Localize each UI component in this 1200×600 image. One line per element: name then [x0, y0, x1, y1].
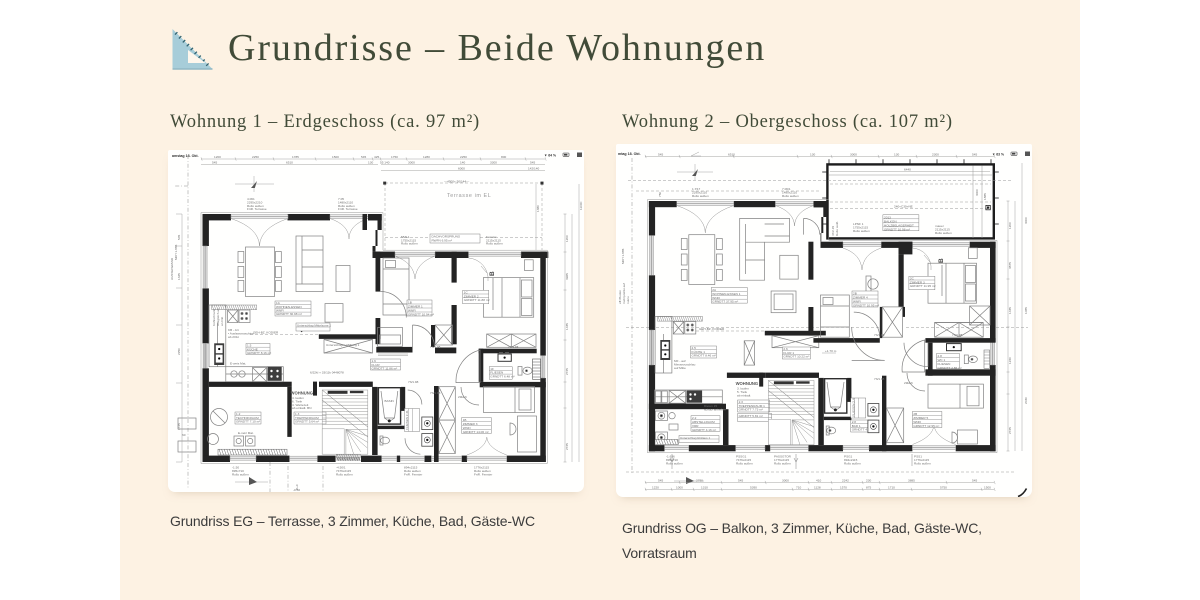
svg-text:3000: 3000 [1024, 217, 1028, 224]
svg-text:an Okt: an Okt [220, 317, 224, 326]
svg-text:GRNDTT 14.06 m²: GRNDTT 14.06 m² [463, 430, 489, 434]
svg-text:ab einladt: ab einladt [737, 393, 751, 397]
svg-text:1310: 1310 [701, 486, 708, 490]
svg-text:—4500+ 50/144—: —4500+ 50/144— [444, 179, 470, 183]
svg-text:1500: 1500 [332, 155, 339, 159]
svg-text:875: 875 [866, 486, 871, 490]
svg-text:1220: 1220 [652, 486, 659, 490]
svg-text:nutzu: nutzu [626, 296, 630, 304]
svg-text:GRNDTT 11.88 m²: GRNDTT 11.88 m² [464, 298, 490, 302]
svg-text:FrtR. Fenster: FrtR. Fenster [404, 472, 422, 476]
svg-text:FrtR. Fenster: FrtR. Fenster [474, 472, 492, 476]
svg-text:1200: 1200 [1008, 222, 1012, 229]
svg-text:545: 545 [177, 235, 181, 240]
svg-text:MFH 1.885: MFH 1.885 [621, 248, 625, 264]
svg-text:3000: 3000 [782, 479, 789, 483]
svg-text:240+C30+NE: 240+C30+NE [894, 204, 913, 208]
svg-text:GEH-BZ. KODIER: GEH-BZ. KODIER [253, 331, 279, 335]
svg-text:6000: 6000 [458, 167, 465, 171]
svg-text:1435: 1435 [1008, 307, 1012, 314]
svg-text:B: B [938, 258, 945, 263]
svg-text:GRNDTT 4.16 m²: GRNDTT 4.16 m² [692, 428, 716, 432]
svg-text:3000: 3000 [408, 161, 415, 165]
svg-text:BASIN: BASIN [385, 399, 394, 403]
svg-text:1345: 1345 [177, 273, 181, 280]
svg-text:6/22kl + 33/11k 0448078: 6/22kl + 33/11k 0448078 [310, 371, 344, 375]
svg-text:GRNDTT 37.95 m²: GRNDTT 37.95 m² [712, 300, 738, 304]
svg-text:mtag 18. Okt.: mtag 18. Okt. [618, 152, 641, 156]
svg-text:73/1.98: 73/1.98 [508, 345, 519, 349]
svg-text:11000: 11000 [579, 201, 583, 210]
svg-text:2790: 2790 [696, 479, 703, 483]
svg-text:Rollo außen: Rollo außen [666, 461, 683, 465]
svg-text:ab einladt. BN: ab einladt. BN [292, 406, 311, 410]
svg-text:130: 130 [368, 161, 373, 165]
svg-text:73/1.98: 73/1.98 [952, 333, 963, 337]
svg-text:1200: 1200 [214, 155, 221, 159]
svg-text:Rollo weiß: Rollo weiß [835, 221, 839, 236]
svg-text:130: 130 [894, 152, 899, 156]
svg-text:1785: 1785 [292, 155, 299, 159]
svg-text:GRNDTT 6.48 m²: GRNDTT 6.48 m² [490, 374, 514, 378]
svg-text:73/1.98: 73/1.98 [430, 345, 441, 349]
svg-text:amstag 18. Okt.: amstag 18. Okt. [172, 154, 199, 158]
svg-text:73/1.98: 73/1.98 [408, 380, 419, 384]
svg-text:3000: 3000 [975, 189, 979, 196]
svg-text:73/1.98: 73/1.98 [874, 377, 885, 381]
svg-text:GRNDTT 10.95 m²: GRNDTT 10.95 m² [853, 304, 879, 308]
svg-text:3875: 3875 [1008, 262, 1012, 269]
svg-text:800: 800 [501, 155, 506, 159]
svg-text:Rollo außen: Rollo außen [486, 242, 503, 246]
svg-text:GRNDTT 11.95 m²: GRNDTT 11.95 m² [910, 284, 936, 288]
svg-text:Rollo außen: Rollo außen [692, 194, 709, 198]
svg-text:Unterschlag Rollaus 1: Unterschlag Rollaus 1 [680, 436, 711, 440]
svg-text:MFH 1.885: MFH 1.885 [174, 244, 178, 260]
svg-text:2725: 2725 [1008, 427, 1012, 434]
svg-text:FLIESEN 2.41: FLIESEN 2.41 [405, 410, 409, 430]
svg-text:1380: 1380 [536, 205, 540, 212]
svg-text:60: 60 [182, 433, 186, 437]
svg-text:1280: 1280 [423, 155, 430, 159]
svg-text:1500: 1500 [984, 486, 991, 490]
svg-text:5390: 5390 [750, 486, 757, 490]
svg-text:1200: 1200 [565, 235, 569, 242]
svg-text:545: 545 [972, 152, 977, 156]
svg-text:Rollo außen: Rollo außen [935, 231, 952, 235]
svg-text:GRNDTT 12.95 m²: GRNDTT 12.95 m² [913, 424, 939, 428]
svg-text:Rollo außen: Rollo außen [853, 229, 870, 233]
svg-text:GEH-BZ. KODIER: GEH-BZ. KODIER [699, 327, 725, 331]
svg-text:55 140: 55 140 [380, 161, 390, 165]
svg-text:1435: 1435 [565, 323, 569, 330]
svg-text:2725: 2725 [565, 368, 569, 375]
svg-text:WOHNUNG: WOHNUNG [736, 381, 759, 386]
svg-text:Untersichtiges Mißung 1: Untersichtiges Mißung 1 [326, 343, 360, 347]
svg-text:3885: 3885 [908, 479, 915, 483]
svg-text:2242: 2242 [842, 479, 849, 483]
svg-text:2250: 2250 [460, 155, 467, 159]
svg-text:FLIESEN 2.4: FLIESEN 2.4 [852, 398, 856, 416]
svg-text:GRNDTT 5.64 m²: GRNDTT 5.64 m² [295, 420, 319, 424]
svg-text:1750: 1750 [391, 155, 398, 159]
svg-text:+1.70 m: +1.70 m [825, 349, 837, 353]
svg-text:FrtR. Terrasse: FrtR. Terrasse [247, 207, 267, 211]
svg-text:545: 545 [738, 479, 743, 483]
svg-text:1085: 1085 [1024, 307, 1028, 314]
svg-text:schutz anheßen: schutz anheßen [704, 407, 726, 411]
svg-text:Terrasse im EL: Terrasse im EL [447, 193, 491, 199]
svg-text:750: 750 [658, 192, 662, 197]
svg-text:Rollo außen: Rollo außen [336, 472, 353, 476]
svg-text:GRNDTT 36.98 m²: GRNDTT 36.98 m² [276, 312, 302, 316]
svg-text:Rollo außen: Rollo außen [782, 194, 799, 198]
svg-text:3000: 3000 [850, 152, 857, 156]
svg-text:6510: 6510 [286, 161, 293, 165]
svg-text:73/1.98: 73/1.98 [430, 391, 441, 395]
svg-text:2250: 2250 [177, 348, 181, 355]
svg-text:ab 2Okt: ab 2Okt [228, 335, 239, 339]
svg-text:GRNDTT 10.98 m²: GRNDTT 10.98 m² [884, 227, 910, 231]
svg-text:73/1.98: 73/1.98 [874, 333, 885, 337]
svg-text:-0.30: -0.30 [293, 488, 300, 492]
svg-text:1570: 1570 [840, 486, 847, 490]
svg-text:GRNDTT 8.46 m²: GRNDTT 8.46 m² [692, 354, 716, 358]
svg-text:1885: 1885 [983, 193, 987, 200]
svg-text:GRNDTT 11.86 m²: GRNDTT 11.86 m² [372, 367, 398, 371]
svg-text:2250: 2250 [252, 155, 259, 159]
svg-text:Rollo außen: Rollo außen [736, 461, 753, 465]
svg-text:1710: 1710 [888, 486, 895, 490]
svg-text:3965: 3965 [565, 273, 569, 280]
svg-text:1220: 1220 [1008, 357, 1012, 364]
svg-text:GRNDTT 7.73 m²: GRNDTT 7.73 m² [739, 408, 763, 412]
svg-text:2725: 2725 [565, 443, 569, 450]
svg-text:545: 545 [658, 152, 663, 156]
svg-text:Rollo außen: Rollo außen [774, 461, 791, 465]
svg-text:E-netz Mat.: E-netz Mat. [238, 431, 254, 435]
svg-text:140: 140 [460, 161, 465, 165]
svg-text:RWFN 6.95 m²: RWFN 6.95 m² [432, 239, 453, 243]
svg-text:GRNDTT 10.94 m²: GRNDTT 10.94 m² [408, 312, 434, 316]
svg-text:545: 545 [361, 155, 366, 159]
svg-text:GRNDTT 10.22 m²: GRNDTT 10.22 m² [783, 355, 809, 359]
svg-text:1128: 1128 [814, 486, 821, 490]
svg-text:545: 545 [658, 479, 663, 483]
svg-text:545: 545 [212, 161, 217, 165]
svg-text:▼ 63 %: ▼ 63 % [992, 153, 1004, 157]
svg-text:142/140: 142/140 [528, 167, 539, 171]
svg-text:GRNDTT 8.16 m²: GRNDTT 8.16 m² [247, 351, 271, 355]
svg-text:2030: 2030 [1024, 397, 1028, 404]
svg-text:WOHNUNG: WOHNUNG [291, 391, 314, 396]
svg-text:5750: 5750 [940, 486, 947, 490]
svg-text:6510: 6510 [728, 152, 735, 156]
svg-text:auf Mitte: auf Mitte [674, 366, 686, 370]
svg-text:2300: 2300 [932, 152, 939, 156]
svg-text:▼ 64 %: ▼ 64 % [544, 154, 556, 158]
svg-text:545: 545 [530, 161, 535, 165]
svg-text:130: 130 [810, 152, 815, 156]
svg-text:FrtR. Terrasse: FrtR. Terrasse [338, 207, 358, 211]
svg-text:GRNDTT 2.86 m²: GRNDTT 2.86 m² [938, 366, 962, 370]
svg-text:GRNDTT 7.10 m²: GRNDTT 7.10 m² [236, 420, 260, 424]
svg-text:29kwh: 29kwh [904, 381, 913, 385]
svg-text:Rollo außen: Rollo außen [914, 461, 931, 465]
svg-text:545: 545 [972, 479, 977, 483]
svg-text:E-weis Mat.: E-weis Mat. [230, 362, 246, 366]
svg-text:1725: 1725 [177, 423, 181, 430]
svg-text:Rollo außen: Rollo außen [844, 461, 861, 465]
svg-text:710: 710 [796, 486, 801, 490]
svg-text:230: 230 [866, 479, 871, 483]
svg-text:6440: 6440 [904, 168, 911, 172]
svg-text:1000: 1000 [676, 486, 683, 490]
svg-text:B: B [489, 271, 496, 276]
svg-text:29kwh: 29kwh [458, 395, 467, 399]
svg-text:425: 425 [374, 155, 379, 159]
svg-text:3300: 3300 [490, 161, 497, 165]
svg-text:AUSSENWAND: AUSSENWAND [170, 257, 174, 280]
svg-text:Rollo außen: Rollo außen [401, 242, 418, 246]
svg-text:410: 410 [816, 479, 821, 483]
svg-text:Rollo außen: Rollo außen [232, 472, 249, 476]
